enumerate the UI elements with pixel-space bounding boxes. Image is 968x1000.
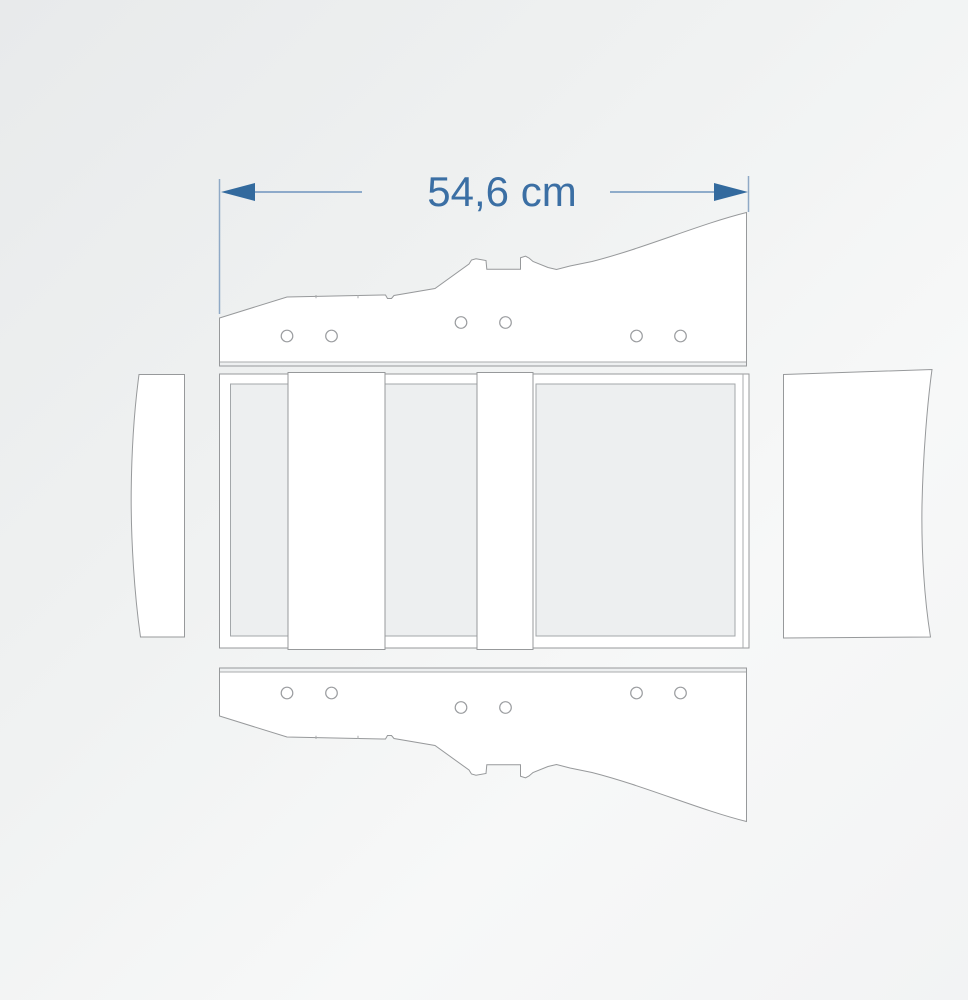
side-panel-top (220, 213, 747, 367)
end-panel-right-outline (784, 370, 933, 639)
end-panel-right (784, 370, 933, 639)
frame-panel (231, 384, 289, 636)
frame-panel (385, 384, 477, 636)
cross-board-2 (477, 373, 533, 650)
frame-top-view (220, 373, 750, 650)
end-panel-left-outline (131, 375, 184, 638)
end-panel-left (131, 375, 184, 638)
assembly-diagram: 54,6 cm (0, 0, 968, 1000)
side-panel-bottom (220, 668, 747, 822)
dimension-arrow-left-icon (221, 183, 255, 201)
dimension-arrow-right-icon (714, 183, 748, 201)
frame-panel (536, 384, 735, 636)
dimension-label: 54,6 cm (427, 168, 576, 215)
cross-board-1 (288, 373, 385, 650)
